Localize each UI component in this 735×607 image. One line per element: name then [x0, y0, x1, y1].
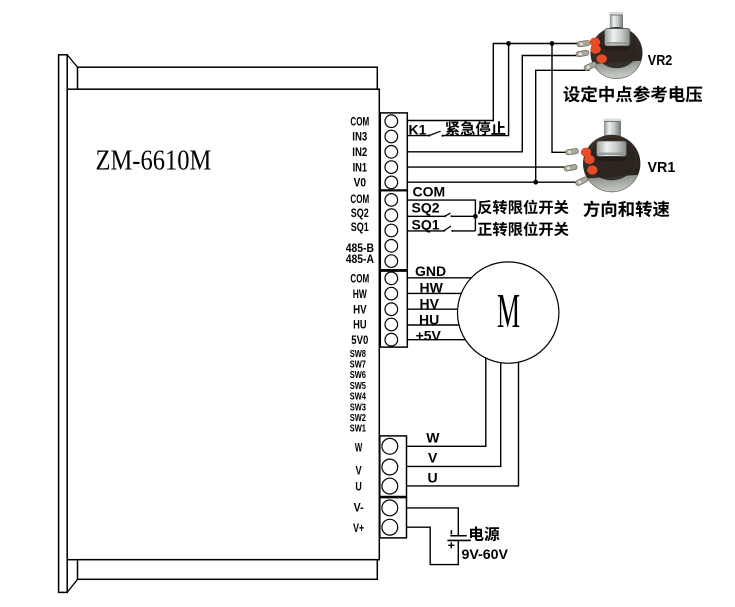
- svg-text:SQ2: SQ2: [351, 208, 369, 220]
- svg-text:SW4: SW4: [350, 392, 367, 403]
- svg-text:V-: V-: [354, 502, 364, 514]
- svg-text:GND: GND: [415, 263, 446, 279]
- svg-text:K1: K1: [409, 122, 427, 138]
- svg-text:HW: HW: [420, 280, 444, 296]
- svg-text:SQ1: SQ1: [412, 216, 440, 232]
- svg-text:W: W: [355, 443, 362, 455]
- svg-text:SQ1: SQ1: [351, 222, 369, 234]
- svg-text:SQ2: SQ2: [412, 200, 440, 216]
- svg-text:+5V: +5V: [416, 327, 442, 343]
- svg-text:HV: HV: [420, 295, 440, 311]
- svg-text:HV: HV: [353, 304, 367, 316]
- svg-text:485-A: 485-A: [346, 254, 374, 266]
- svg-text:W: W: [426, 429, 440, 445]
- svg-text:IN3: IN3: [352, 132, 367, 144]
- svg-text:COM: COM: [413, 183, 446, 199]
- svg-text:ZM-6610M: ZM-6610M: [96, 144, 212, 176]
- svg-text:VR1: VR1: [648, 160, 676, 176]
- svg-text:SW8: SW8: [350, 349, 367, 360]
- svg-text:COM: COM: [350, 116, 369, 128]
- svg-text:SW1: SW1: [350, 424, 367, 435]
- svg-text:VR2: VR2: [648, 53, 673, 69]
- svg-text:SW3: SW3: [350, 402, 367, 413]
- svg-text:M: M: [497, 283, 520, 338]
- svg-text:V: V: [356, 465, 362, 477]
- svg-text:V: V: [428, 449, 438, 465]
- svg-text:COM: COM: [350, 194, 369, 206]
- svg-text:SW7: SW7: [350, 360, 367, 371]
- svg-text:U: U: [355, 482, 361, 494]
- svg-text:V+: V+: [353, 523, 364, 535]
- svg-text:SW2: SW2: [350, 413, 367, 424]
- svg-text:HU: HU: [419, 311, 439, 327]
- svg-text:IN1: IN1: [353, 162, 368, 174]
- svg-text:V0: V0: [354, 178, 367, 190]
- svg-text:SW6: SW6: [350, 370, 367, 381]
- svg-text:HW: HW: [353, 289, 367, 301]
- svg-text:5V0: 5V0: [351, 335, 368, 347]
- svg-text:HU: HU: [353, 320, 367, 332]
- svg-text:U: U: [428, 469, 438, 485]
- svg-text:SW5: SW5: [350, 381, 367, 392]
- svg-text:COM: COM: [350, 274, 369, 286]
- svg-text:9V-60V: 9V-60V: [462, 547, 509, 562]
- svg-text:IN2: IN2: [352, 147, 367, 159]
